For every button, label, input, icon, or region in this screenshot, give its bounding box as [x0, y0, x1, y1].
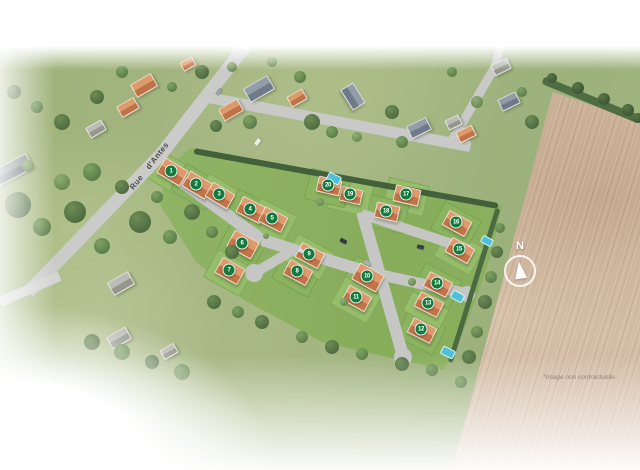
tree: [471, 326, 483, 338]
tree: [267, 57, 277, 67]
parked-car: [416, 245, 424, 250]
tree: [385, 105, 399, 119]
tree: [31, 101, 43, 113]
existing-house: [243, 75, 275, 103]
tree: [495, 223, 505, 233]
lot-marker-9[interactable]: 9: [303, 248, 316, 261]
lot-marker-3[interactable]: 3: [213, 188, 226, 201]
tree: [426, 364, 438, 376]
tree: [64, 201, 86, 223]
tree: [174, 364, 190, 380]
existing-house: [179, 56, 196, 72]
lot-marker-12[interactable]: 12: [415, 323, 428, 336]
tree: [206, 226, 218, 238]
disclaimer-text: *Image non contractuelle: [543, 374, 615, 381]
tree: [90, 90, 104, 104]
lot-marker-11[interactable]: 11: [350, 291, 363, 304]
tree: [622, 104, 634, 116]
rue-dantes-road: [155, 33, 257, 159]
lot-marker-6[interactable]: 6: [236, 237, 249, 250]
tree: [255, 315, 269, 329]
tree: [207, 295, 221, 309]
lot-marker-7[interactable]: 7: [223, 264, 236, 277]
tree: [462, 350, 476, 364]
existing-house: [107, 271, 135, 296]
tree: [408, 278, 416, 286]
lot-marker-8[interactable]: 8: [291, 265, 304, 278]
lot-marker-20[interactable]: 20: [322, 179, 335, 192]
tree: [447, 67, 457, 77]
lot-marker-13[interactable]: 13: [422, 297, 435, 310]
north-arrow-icon: [513, 261, 527, 280]
compass: N: [504, 240, 536, 287]
tree: [296, 331, 308, 343]
existing-house: [130, 73, 158, 98]
tree: [129, 211, 151, 233]
tree: [547, 73, 557, 83]
site-plan: 1234567891011121314151617181920 Rue d'An…: [0, 0, 640, 470]
tree: [525, 115, 539, 129]
tree: [184, 204, 200, 220]
tree: [33, 218, 51, 236]
parked-car: [339, 238, 347, 244]
compass-circle-icon: [504, 255, 536, 287]
lot-marker-18[interactable]: 18: [380, 205, 393, 218]
village-road: [0, 271, 62, 306]
existing-house: [159, 342, 178, 360]
tree: [210, 120, 222, 132]
tree: [304, 114, 320, 130]
compass-north-label: N: [504, 240, 536, 252]
cul-de-sac: [245, 264, 263, 282]
tree: [485, 271, 497, 283]
tree: [325, 340, 339, 354]
tree: [243, 115, 257, 129]
existing-house: [340, 82, 365, 110]
tree: [145, 355, 159, 369]
tree: [294, 71, 306, 83]
tree: [455, 376, 467, 388]
lot-marker-5[interactable]: 5: [266, 212, 279, 225]
tree: [163, 230, 177, 244]
tree: [54, 114, 70, 130]
lot-marker-4[interactable]: 4: [244, 203, 257, 216]
tree: [326, 126, 338, 138]
lot-marker-14[interactable]: 14: [431, 277, 444, 290]
lot-marker-1[interactable]: 1: [165, 165, 178, 178]
tree: [54, 174, 70, 190]
tree: [232, 306, 244, 318]
tree: [116, 66, 128, 78]
lot-marker-17[interactable]: 17: [400, 188, 413, 201]
tree: [227, 62, 237, 72]
existing-house: [286, 88, 308, 107]
tree: [352, 132, 362, 142]
lot-marker-15[interactable]: 15: [453, 243, 466, 256]
tree: [94, 238, 110, 254]
field-tree-line: [541, 76, 640, 123]
lot-marker-16[interactable]: 16: [450, 216, 463, 229]
tree: [572, 82, 584, 94]
tree: [195, 65, 209, 79]
tree: [84, 334, 100, 350]
tree: [151, 191, 163, 203]
tree: [471, 96, 483, 108]
existing-house: [116, 96, 140, 117]
tree: [633, 113, 640, 123]
tree: [517, 87, 527, 97]
scene-layer: 1234567891011121314151617181920: [0, 0, 640, 470]
tree: [340, 298, 348, 306]
tree: [5, 192, 31, 218]
tree: [263, 233, 269, 239]
existing-house: [85, 119, 107, 138]
tree: [316, 198, 324, 206]
tree: [114, 344, 130, 360]
tree: [7, 85, 21, 99]
lot-marker-2[interactable]: 2: [190, 178, 203, 191]
tree: [115, 180, 129, 194]
tree: [478, 295, 492, 309]
tree: [356, 348, 368, 360]
tree: [22, 160, 34, 172]
tree: [167, 82, 177, 92]
lot-marker-19[interactable]: 19: [344, 188, 357, 201]
parked-car: [253, 138, 260, 146]
existing-house: [551, 13, 570, 30]
tree: [598, 93, 610, 105]
tree: [83, 163, 101, 181]
tree: [491, 246, 503, 258]
tree: [395, 357, 409, 371]
tree: [396, 136, 408, 148]
lot-marker-10[interactable]: 10: [361, 270, 374, 283]
